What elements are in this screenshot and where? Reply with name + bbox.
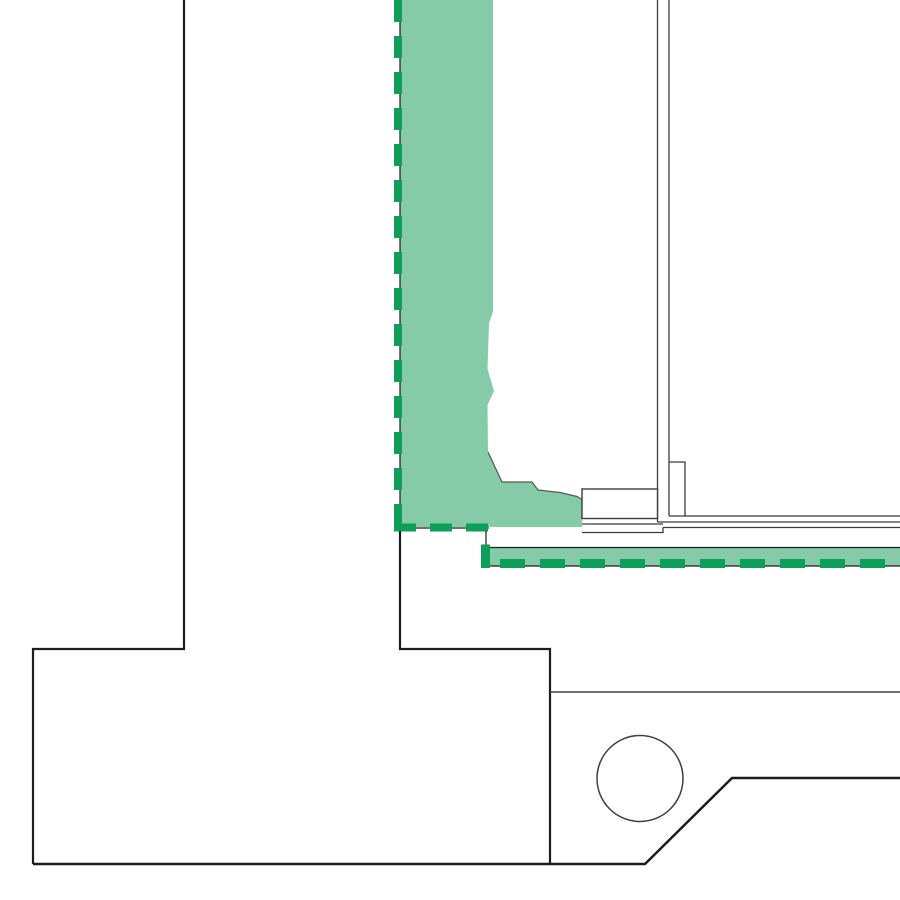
horizontal-insulation-layer [483,531,900,568]
outer-wall-footing-line [33,0,184,864]
sill-support-block [582,489,658,519]
inner-plinth-contour [400,531,550,864]
detail-drawing-canvas [0,0,900,900]
window-frame [582,0,900,533]
footing-base-chamfer-line [33,778,900,864]
vertical-insulation-layer [394,0,582,531]
anchor-sleeve-circle [597,736,683,822]
frame-foot-step-profile [669,462,685,516]
insulation-fill-shape [400,0,582,527]
section-drawing [0,0,900,900]
sill-underlay-step [582,528,663,533]
